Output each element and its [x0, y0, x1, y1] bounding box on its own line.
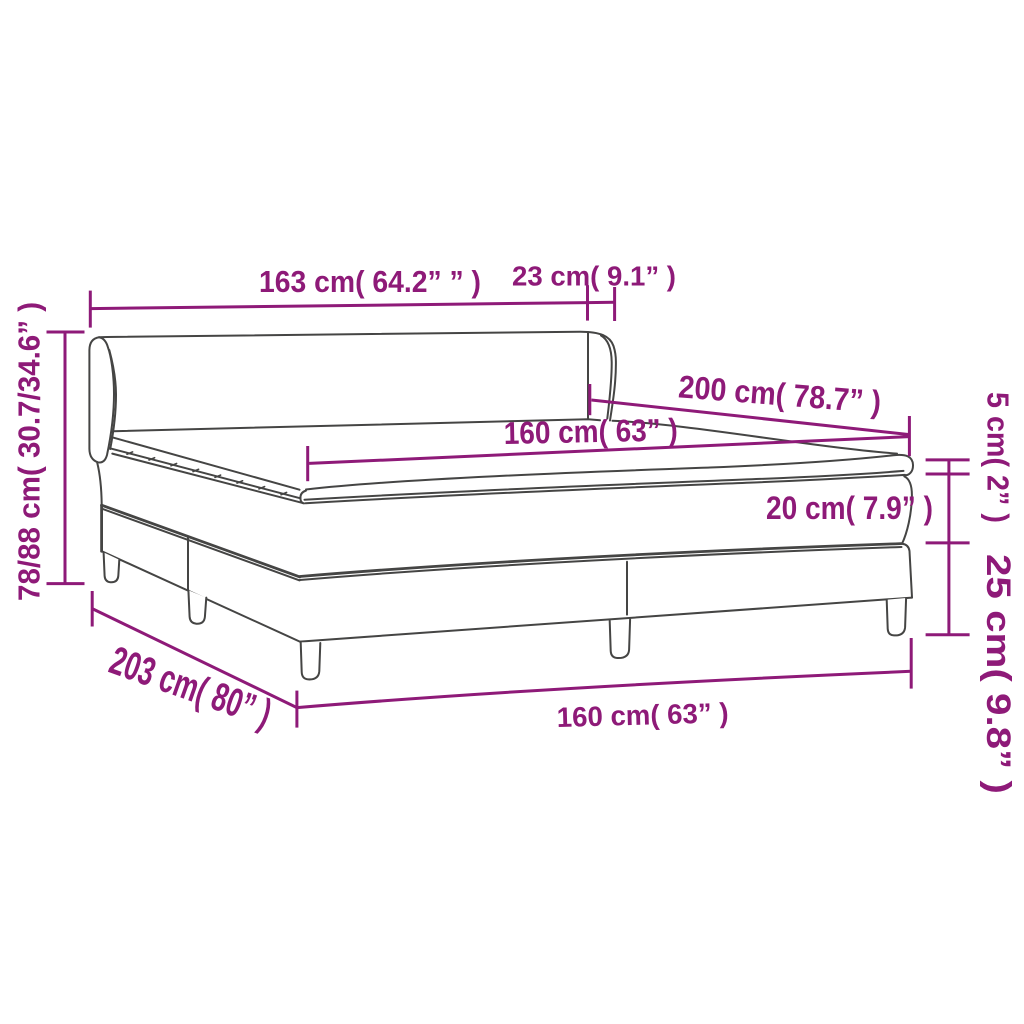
- svg-text:160 cm( 63” ): 160 cm( 63” ): [556, 697, 729, 733]
- svg-text:163 cm( 64.2” ” ): 163 cm( 64.2” ” ): [259, 265, 481, 299]
- svg-text:203 cm( 80” ): 203 cm( 80” ): [104, 638, 277, 736]
- svg-text:78/88 cm( 30.7/34.6” ): 78/88 cm( 30.7/34.6” ): [13, 302, 47, 601]
- svg-text:20 cm( 7.9” ): 20 cm( 7.9” ): [766, 491, 933, 526]
- svg-text:5 cm( 2” ): 5 cm( 2” ): [980, 392, 1014, 523]
- svg-text:23 cm( 9.1” ): 23 cm( 9.1” ): [512, 260, 676, 291]
- svg-text:160 cm( 63” ): 160 cm( 63” ): [503, 413, 678, 452]
- svg-text:25 cm( 9.8” ): 25 cm( 9.8” ): [980, 554, 1018, 794]
